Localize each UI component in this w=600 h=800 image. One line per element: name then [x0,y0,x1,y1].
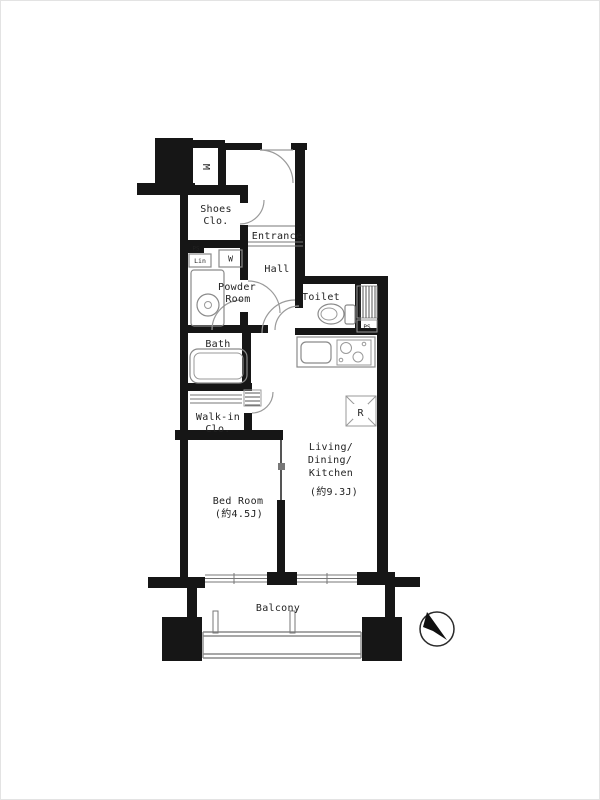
room-size-bedroom: (約4.5J) [215,507,263,520]
room-label-bedroom: Bed Room [213,496,264,507]
pipe-space-toilet-label: PS [363,324,371,331]
room-label-wic-2: Clo. [205,424,230,435]
floorplan-svg: M Shoes Clo. Entrance Hall PS Lin W Powd… [0,0,600,800]
refrigerator-label: R [357,408,364,419]
north-arrow-icon [420,612,454,646]
entry-corridor-wall [295,143,305,283]
toilet-fixture [318,304,355,324]
stove [337,340,371,365]
pipe-space-wic-box [244,390,261,406]
pillar-top-left [155,138,193,185]
kitchen-counter [297,337,375,367]
east-wall [377,276,388,578]
walls [137,138,420,661]
kitchen-sink [301,342,331,363]
room-label-wic-1: Walk-in [196,412,240,423]
vanity-sink [191,270,224,326]
room-label-toilet: Toilet [302,292,340,303]
pipe-space-entry-label: PS [192,246,200,253]
room-label-shoes-closet-2: Clo. [203,216,228,227]
washer-label: W [228,255,233,264]
room-label-balcony: Balcony [256,603,300,614]
room-label-ldk-3: Kitchen [309,468,353,479]
window-ldk [297,573,357,584]
room-label-shoes-closet-1: Shoes [200,204,232,215]
floorplan-page: M Shoes Clo. Entrance Hall PS Lin W Powd… [0,0,600,800]
walk-in-closet-door-arc [252,392,273,413]
bedroom-ldk-partition [277,500,285,578]
room-label-ldk-2: Dining/ [308,455,352,466]
front-door-arc [260,150,293,183]
linen-label: Lin [194,257,206,265]
room-label-powder-2: Room [225,294,250,305]
bedroom-sliding-door [278,440,285,500]
shaft-hatch [357,286,377,318]
room-label-bath: Bath [205,339,230,350]
shoes-closet-door-arc [240,200,264,224]
pillar-bottom-right [362,617,402,661]
room-label-powder-1: Powder [218,282,256,293]
room-label-hall: Hall [264,264,289,275]
balcony-railing [203,611,361,658]
room-size-ldk: (約9.3J) [310,485,358,498]
pillar-bottom-left [162,617,202,661]
bathtub [190,349,247,383]
closet-hanger-rod [190,395,242,403]
toilet-door-arc [275,306,299,330]
room-label-ldk-1: Living/ [309,442,353,453]
meter-box-label: M [200,164,211,170]
window-bedroom [205,573,267,584]
room-label-entrance: Entrance [252,231,303,242]
